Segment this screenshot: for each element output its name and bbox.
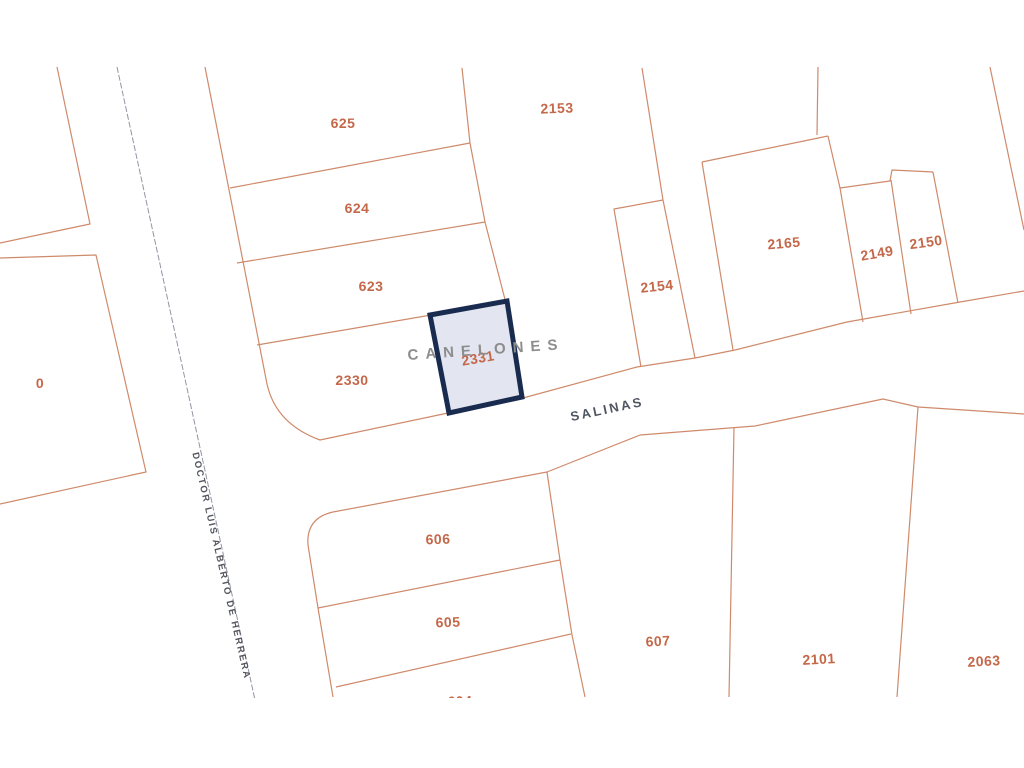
north-block-and-salinas-north-line xyxy=(205,67,1024,440)
parcel-label-625: 625 xyxy=(331,115,356,131)
divider-2101-2063 xyxy=(897,407,918,697)
cadastral-map-viewport[interactable]: 0 625 624 623 2330 2331 2153 2154 2165 2… xyxy=(0,0,1024,698)
parcel-label-2153: 2153 xyxy=(540,99,574,116)
divider-625-624 xyxy=(230,143,470,188)
divider-624-623 xyxy=(237,222,485,263)
parcel-label-605: 605 xyxy=(435,614,460,631)
divider-623-2330 xyxy=(257,314,437,345)
parcel-2165-east xyxy=(828,136,863,322)
block-edge-623-2153 xyxy=(462,68,509,315)
divider-606-605 xyxy=(318,560,560,608)
parcel-2165-top xyxy=(702,136,828,162)
parcel-label-624: 624 xyxy=(345,200,370,216)
parcel-2165-west xyxy=(702,162,733,350)
divider-606block-607 xyxy=(547,472,585,697)
parcel-topleft-outline xyxy=(0,67,90,243)
parcel-label-2330: 2330 xyxy=(335,372,368,388)
parcel-label-2063: 2063 xyxy=(967,652,1001,670)
parcel-label-623: 623 xyxy=(359,278,384,294)
parcel-0-outline xyxy=(0,255,146,504)
parcels-2149-2150-top xyxy=(840,170,933,188)
divider-2149-2150 xyxy=(891,180,911,314)
parcel-label-606: 606 xyxy=(425,531,450,548)
parcel-label-2101: 2101 xyxy=(802,650,836,668)
parcel-label-607: 607 xyxy=(645,632,671,649)
edge-2153-east xyxy=(642,68,695,358)
divider-607-2101 xyxy=(729,427,734,697)
parcel-label-604: 604 xyxy=(447,693,472,698)
south-block-and-salinas-south-line xyxy=(308,399,1024,697)
edge-northeast xyxy=(990,67,1024,230)
divider-605-604 xyxy=(336,634,571,687)
parcel-label-0: 0 xyxy=(36,375,44,391)
edge-top-vertical xyxy=(817,67,818,135)
parcel-label-2165: 2165 xyxy=(767,234,801,253)
